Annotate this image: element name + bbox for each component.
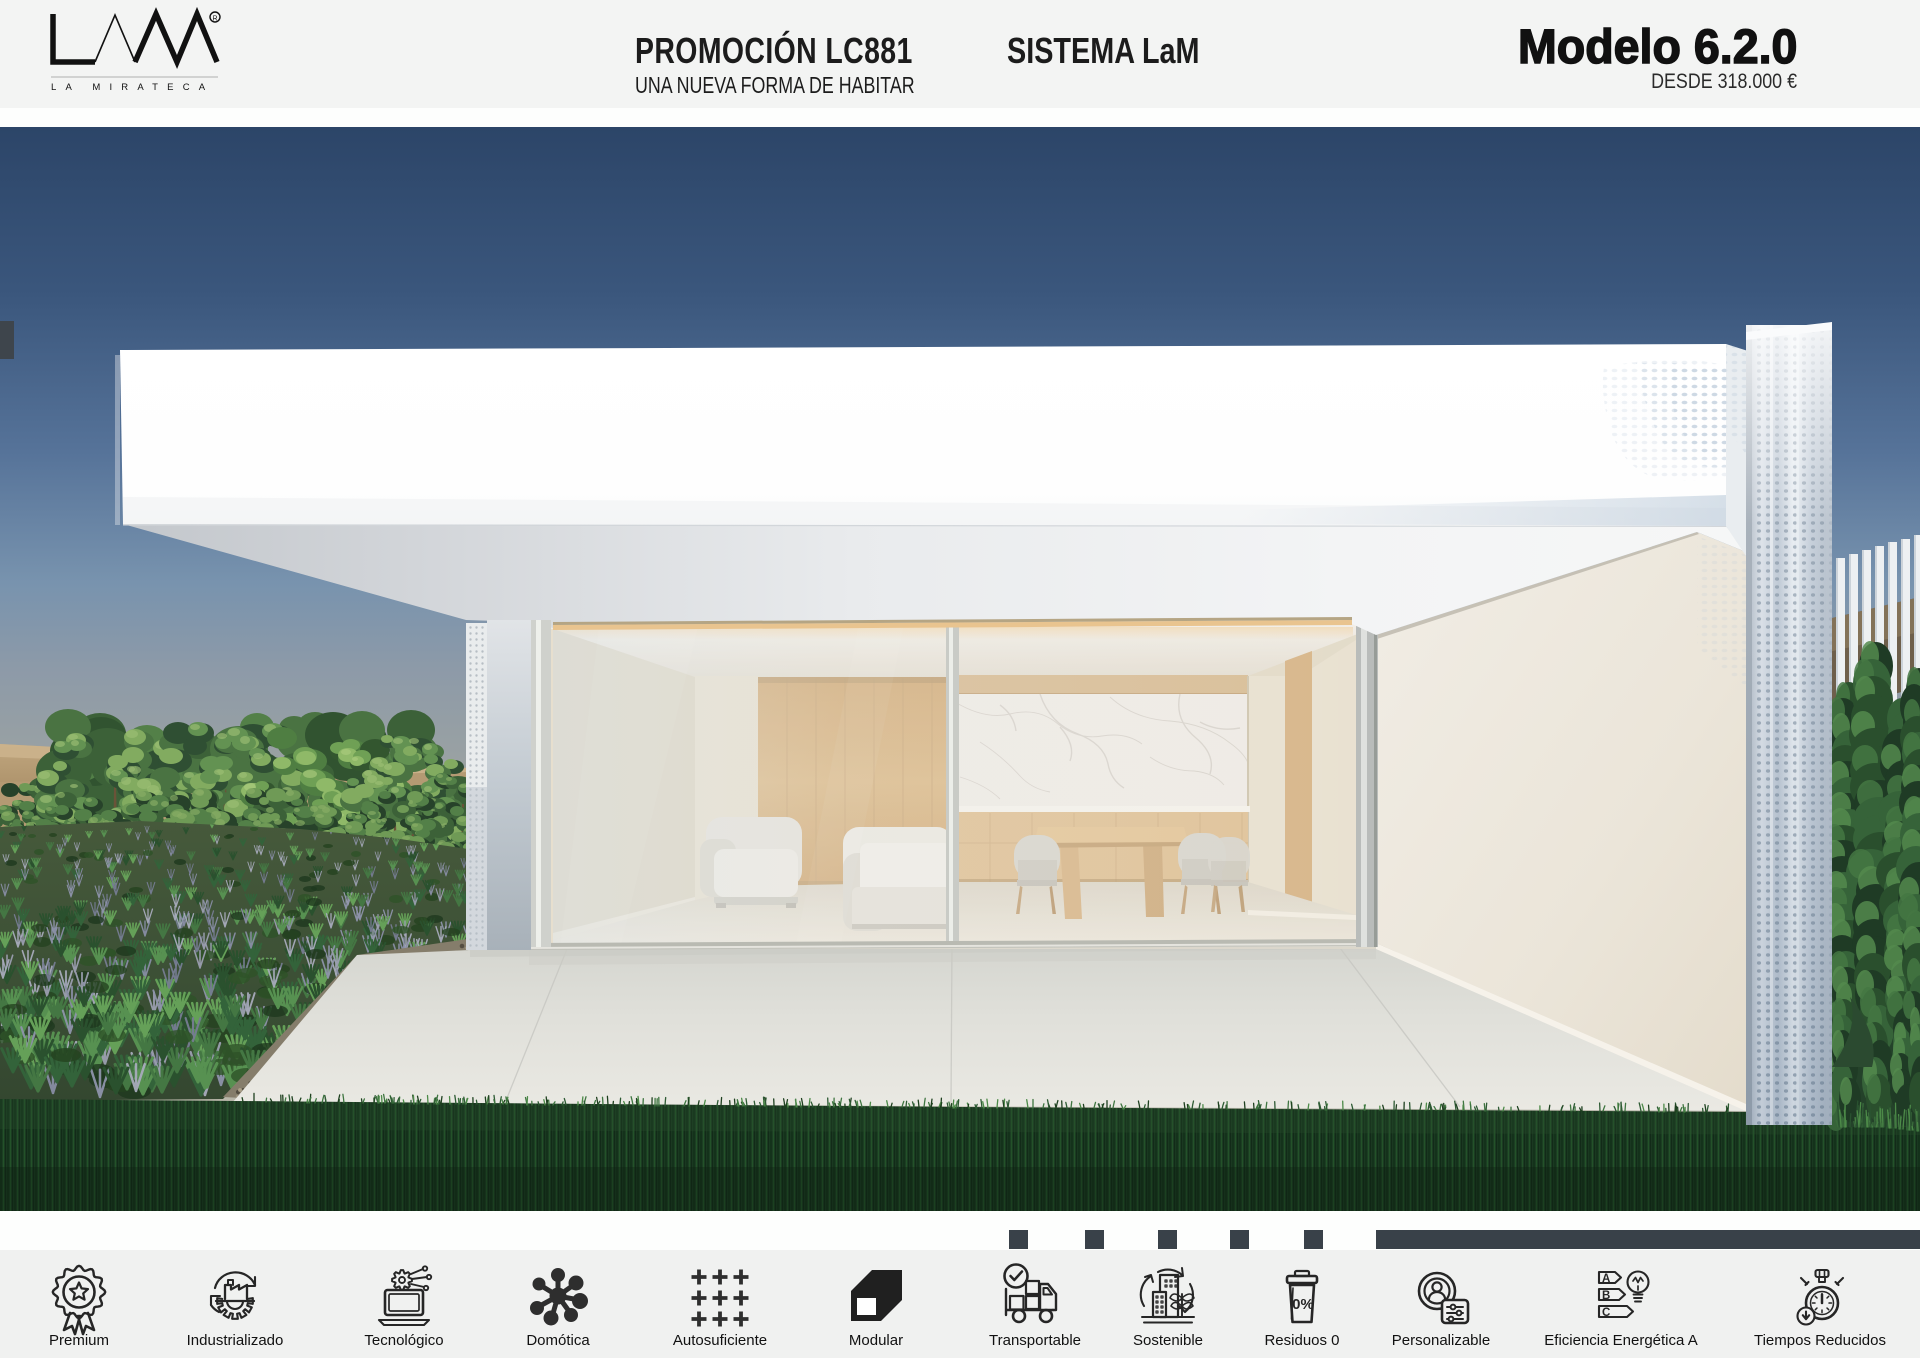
svg-text:B: B	[1602, 1290, 1610, 1302]
svg-text:R: R	[212, 16, 217, 23]
svg-text:C: C	[1602, 1307, 1610, 1319]
svg-text:A: A	[1602, 1273, 1610, 1285]
svg-text:LA MIRATECA: LA MIRATECA	[51, 82, 214, 93]
svg-text:0%: 0%	[1292, 1296, 1314, 1313]
